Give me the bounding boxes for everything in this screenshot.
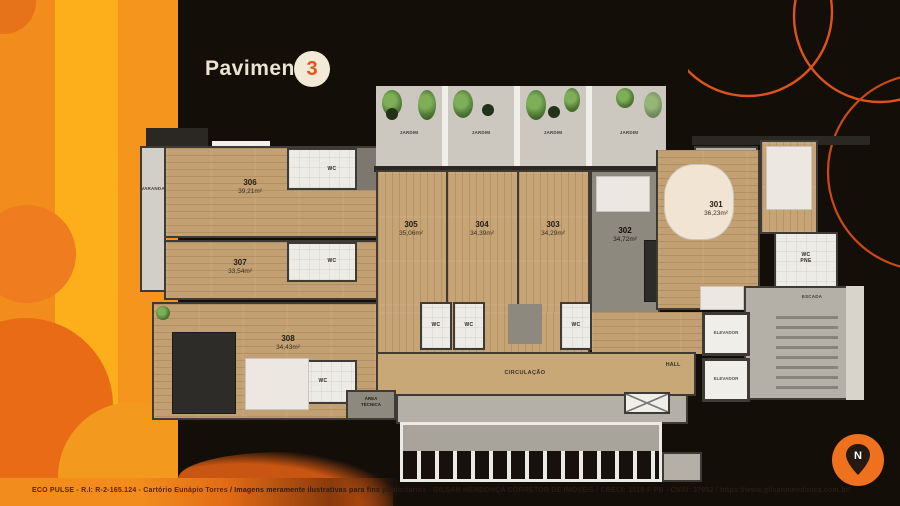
hall-area	[592, 312, 702, 354]
room-varanda	[140, 146, 166, 292]
unit-305-number: 305	[378, 220, 444, 230]
unit-301-label: 301 36,23m²	[684, 200, 748, 218]
wardrobe-furniture	[596, 176, 650, 212]
unit-307-number: 307	[200, 258, 280, 268]
wall-segment	[146, 128, 208, 148]
unit-304-area: 34,39m²	[449, 230, 515, 238]
unit-303-number: 303	[520, 220, 586, 230]
footer-legal-text: ECO PULSE - R.I: R-2-165.124 - Cartório …	[32, 487, 892, 494]
wc-label: WC	[317, 166, 347, 172]
wc-pne-line2: PNE	[800, 258, 811, 264]
wc-label: WC	[317, 258, 347, 264]
circulacao-label: CIRCULAÇÃO	[470, 370, 580, 377]
unit-307-label: 307 33,54m²	[200, 258, 280, 276]
north-compass-pin: N	[830, 432, 886, 488]
jardim-label: JARDIM	[592, 130, 666, 136]
area-tecnica-line1: ÁREA	[365, 396, 378, 401]
unit-306-number: 306	[210, 178, 290, 188]
unit-308-area: 34,43m²	[248, 344, 328, 352]
wc-label: WC	[453, 322, 485, 328]
compass-letter: N	[854, 450, 862, 462]
unit-306-area: 39,21m²	[210, 188, 290, 196]
unit-302-label: 302 34,72m²	[594, 226, 656, 244]
escada-label: ESCADA	[780, 294, 844, 300]
bed-furniture	[172, 332, 236, 414]
unit-301-area: 36,23m²	[684, 210, 748, 218]
garden-panel-3: JARDIM	[520, 86, 586, 168]
hatched-box	[624, 392, 670, 414]
elevador-label: ELEVADOR	[702, 330, 750, 336]
unit-305-label: 305 35,06m²	[378, 220, 444, 238]
garden-panel-1: JARDIM	[376, 86, 442, 168]
unit-307-area: 33,54m²	[200, 268, 280, 276]
area-tecnica-label: ÁREA TÉCNICA	[346, 396, 396, 409]
floor-number: 3	[306, 58, 317, 81]
unit-308-label: 308 34,43m²	[248, 334, 328, 352]
jardim-label: JARDIM	[376, 130, 442, 136]
room-303	[517, 170, 590, 314]
decor-circle	[0, 0, 36, 34]
plant-decor	[526, 90, 546, 120]
plant-decor	[418, 90, 436, 120]
floor-number-badge: 3	[294, 51, 330, 87]
unit-305-area: 35,06m²	[378, 230, 444, 238]
pergola-structure	[400, 422, 662, 482]
brochure-slide: Pavimento 3 VARANDA WC 306 39,21m² WC 30…	[0, 0, 900, 506]
decor-circle	[0, 205, 76, 303]
garden-panel-4: JARDIM	[592, 86, 666, 168]
wall-segment	[846, 286, 864, 400]
area-tecnica-line2: TÉCNICA	[361, 402, 381, 407]
unit-303-label: 303 34,29m²	[520, 220, 586, 238]
bed-furniture	[766, 146, 812, 210]
plant-decor	[453, 90, 473, 118]
footer-text-dark: / Imagens meramente ilustrativas para fi…	[228, 487, 851, 494]
unit-304-label: 304 34,39m²	[449, 220, 515, 238]
room-305	[376, 170, 448, 314]
table-furniture	[700, 286, 744, 310]
wc-pne-label: WC PNE	[774, 252, 838, 265]
wc-pne-line1: WC	[802, 252, 811, 258]
unit-308-number: 308	[248, 334, 328, 344]
plant-decor	[482, 104, 494, 116]
unit-302-area: 34,72m²	[594, 236, 656, 244]
wc-label: WC	[560, 322, 592, 328]
unit-306-label: 306 39,21m²	[210, 178, 290, 196]
wc-label: WC	[308, 378, 338, 384]
laundry-box	[508, 304, 542, 344]
garden-panel-2: JARDIM	[448, 86, 514, 168]
plant-decor	[644, 92, 662, 118]
hall-label: HALL	[648, 362, 698, 369]
plant-decor	[616, 88, 634, 108]
plant-decor	[386, 108, 398, 120]
jardim-label: JARDIM	[448, 130, 514, 136]
unit-304-number: 304	[449, 220, 515, 230]
elevador-label: ELEVADOR	[702, 376, 750, 382]
jardim-label: JARDIM	[520, 130, 586, 136]
plant-decor	[156, 306, 170, 320]
sofa-furniture	[245, 358, 309, 410]
room-304	[446, 170, 519, 314]
wc-label: WC	[420, 322, 452, 328]
stair-treads	[776, 316, 838, 394]
terrace-ext	[662, 452, 702, 482]
plant-decor	[564, 88, 580, 112]
unit-302-number: 302	[594, 226, 656, 236]
plant-decor	[548, 106, 560, 118]
unit-303-area: 34,29m²	[520, 230, 586, 238]
unit-301-number: 301	[684, 200, 748, 210]
pergola-slats	[403, 451, 659, 479]
footer-text-bright: ECO PULSE - R.I: R-2-165.124 - Cartório …	[32, 487, 228, 494]
